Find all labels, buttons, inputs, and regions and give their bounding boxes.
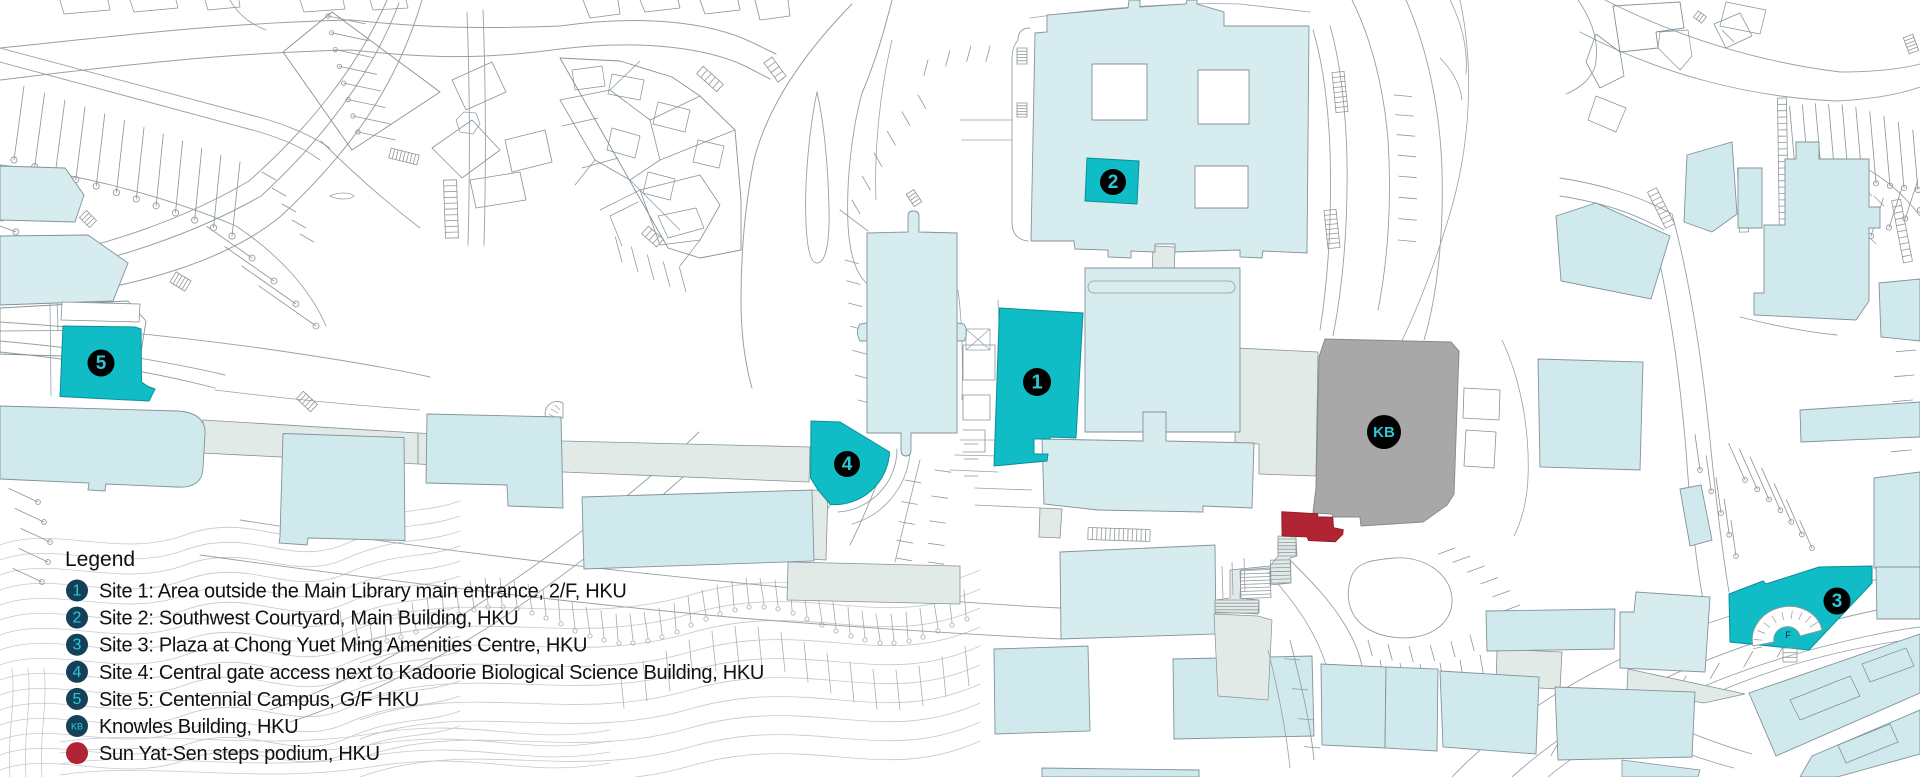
svg-text:4: 4 — [842, 454, 853, 475]
svg-text:F: F — [1785, 630, 1791, 640]
svg-text:Sun Yat-Sen steps podium, HKU: Sun Yat-Sen steps podium, HKU — [99, 743, 380, 765]
svg-text:Site 1: Area outside the Main: Site 1: Area outside the Main Library ma… — [99, 581, 627, 603]
svg-text:3: 3 — [73, 637, 82, 654]
svg-text:5: 5 — [73, 691, 82, 708]
svg-text:KB: KB — [71, 722, 83, 732]
svg-text:Site 2: Southwest Courtyard, M: Site 2: Southwest Courtyard, Main Buildi… — [99, 608, 518, 630]
svg-text:3: 3 — [1832, 591, 1843, 612]
svg-text:5: 5 — [96, 353, 107, 374]
svg-text:KB: KB — [1373, 424, 1395, 441]
svg-text:1: 1 — [73, 583, 82, 600]
svg-text:2: 2 — [73, 610, 82, 627]
svg-text:Legend: Legend — [65, 548, 135, 571]
svg-text:Knowles Building, HKU: Knowles Building, HKU — [99, 716, 298, 738]
svg-text:4: 4 — [73, 664, 82, 681]
svg-text:Site 3: Plaza at Chong Yuet Mi: Site 3: Plaza at Chong Yuet Ming Ameniti… — [99, 635, 587, 657]
svg-text:2: 2 — [1108, 172, 1119, 193]
svg-text:Site 5: Centennial Campus, G/F: Site 5: Centennial Campus, G/F HKU — [99, 689, 419, 711]
svg-text:Site 4: Central gate access ne: Site 4: Central gate access next to Kado… — [99, 662, 764, 684]
svg-text:1: 1 — [1031, 372, 1042, 394]
